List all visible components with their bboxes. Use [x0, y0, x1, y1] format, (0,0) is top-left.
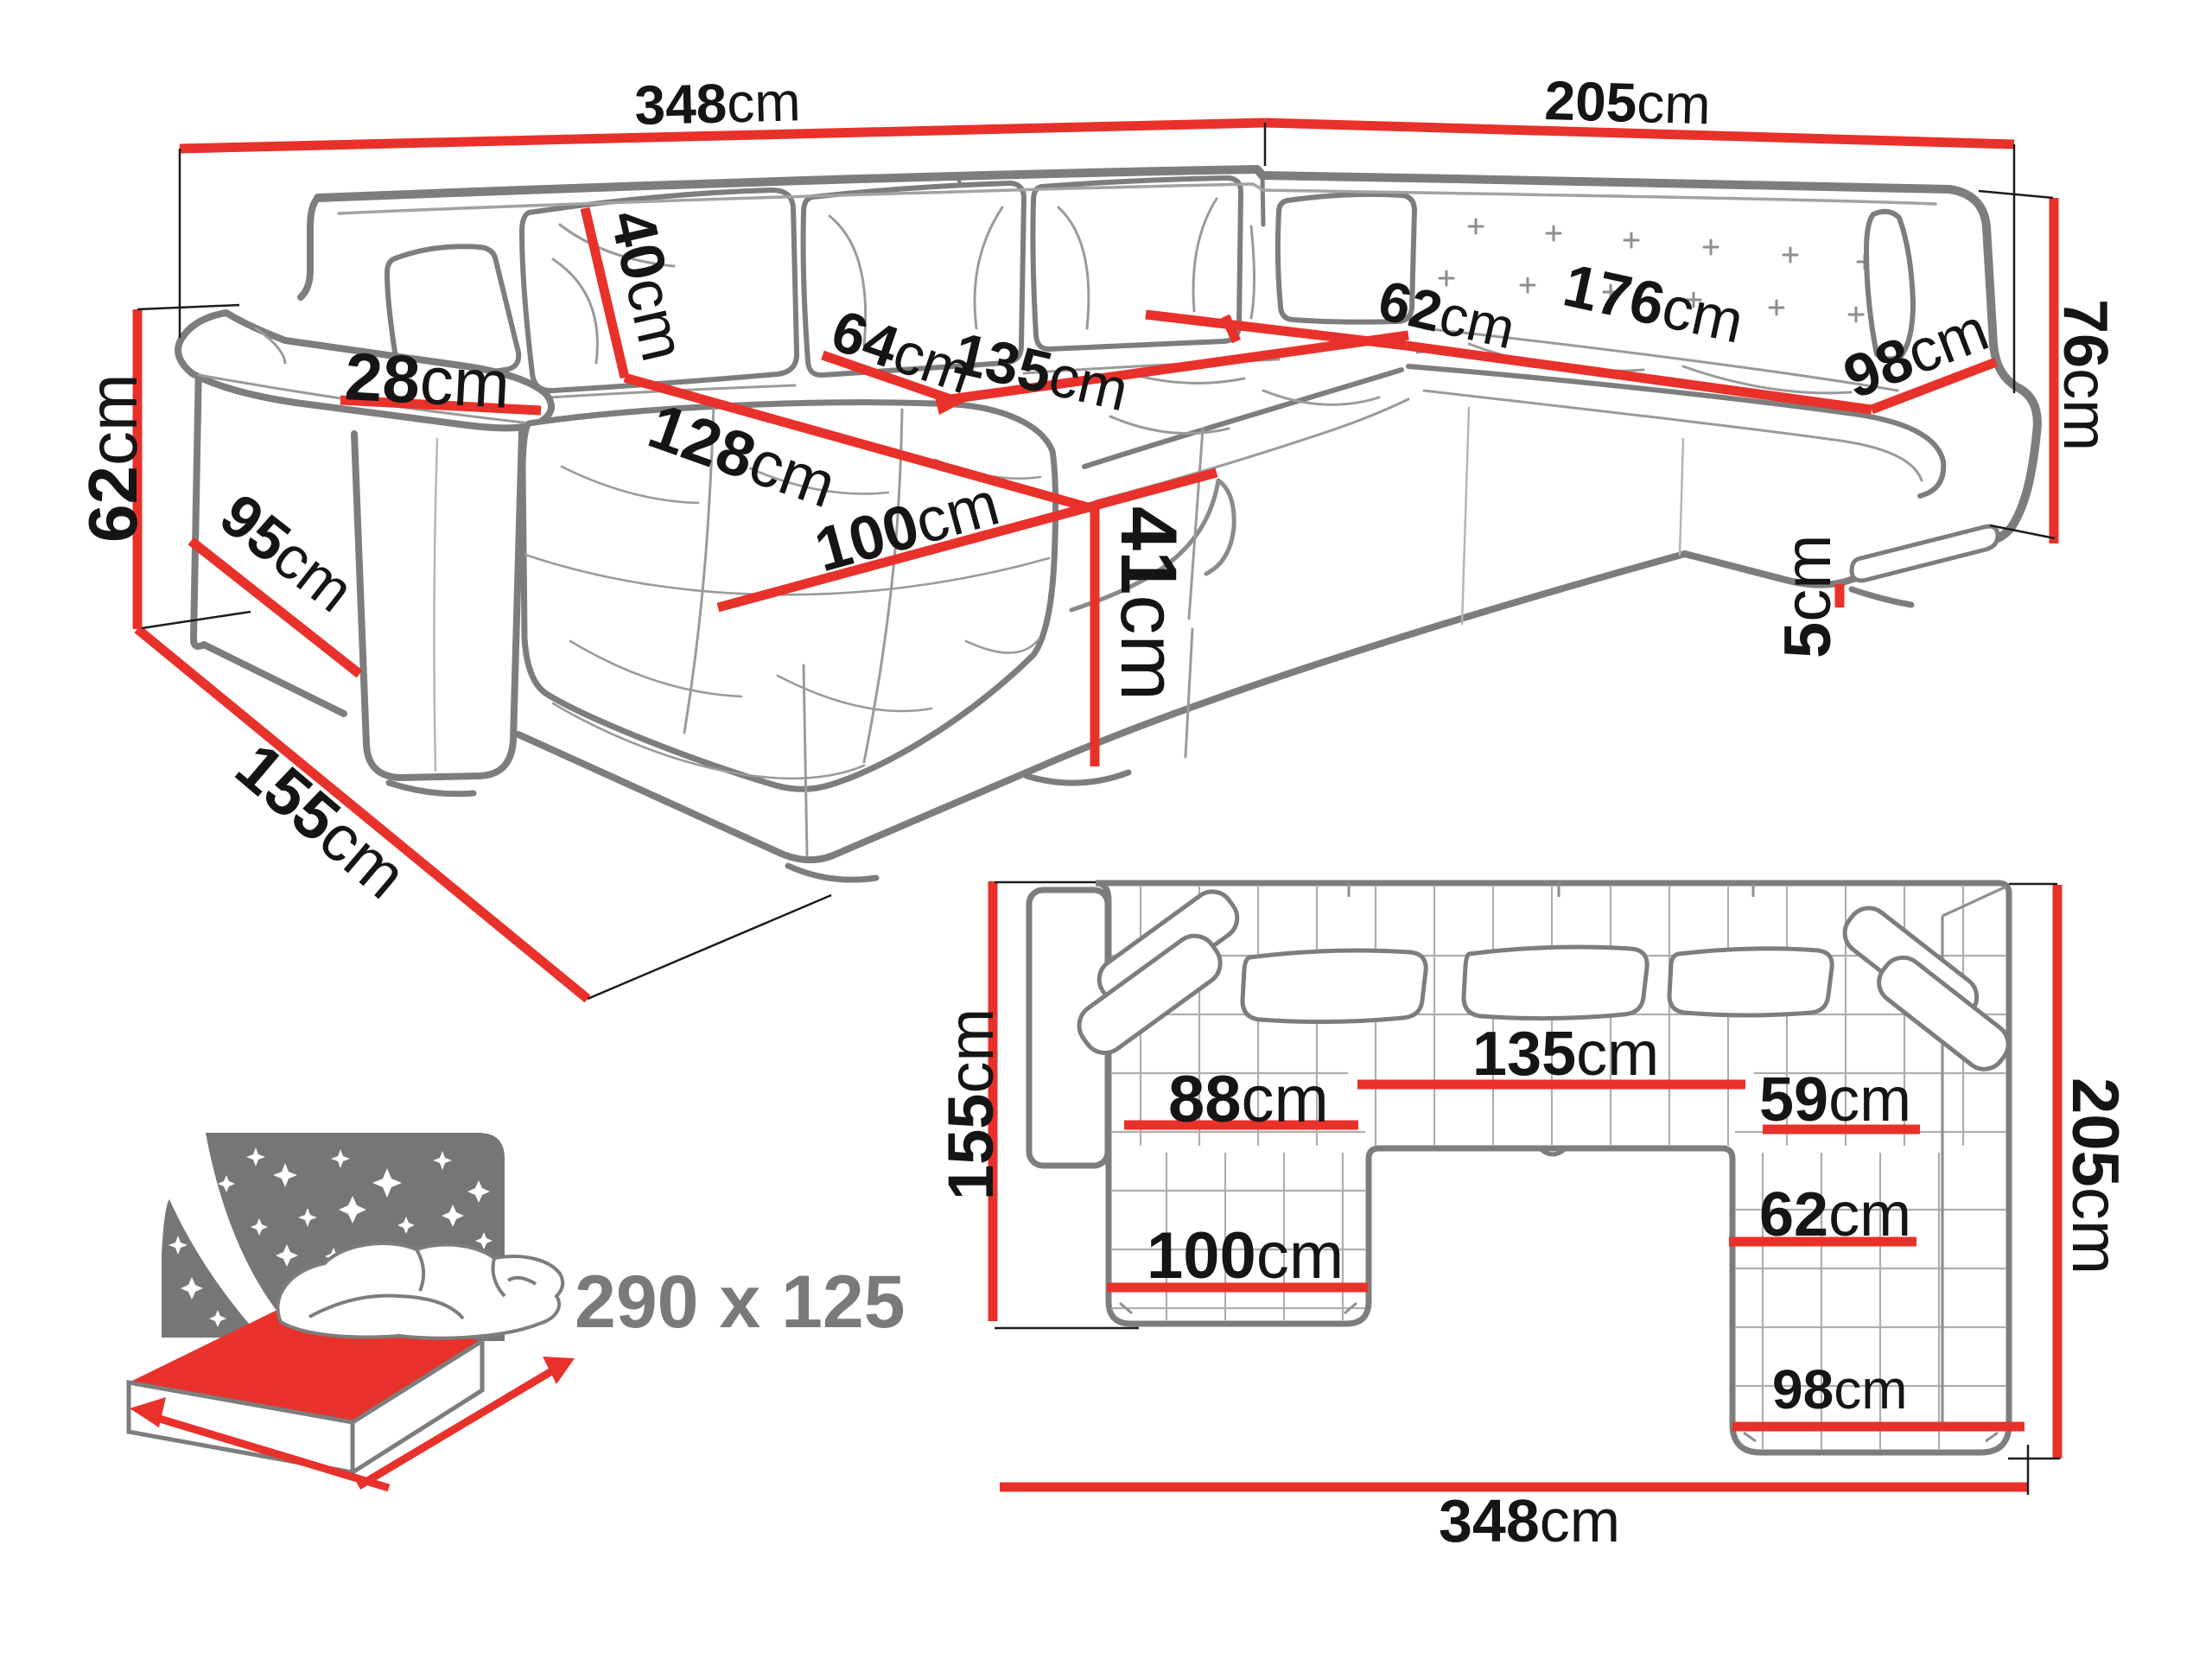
svg-text:5cm: 5cm: [1771, 534, 1845, 658]
svg-text:41cm: 41cm: [1104, 506, 1192, 701]
svg-text:348cm: 348cm: [634, 70, 802, 137]
svg-text:155cm: 155cm: [935, 1008, 1007, 1200]
svg-text:62cm: 62cm: [1759, 1180, 1911, 1249]
svg-text:290 x 125: 290 x 125: [575, 1261, 906, 1344]
svg-text:76cm: 76cm: [2050, 299, 2120, 451]
svg-text:205cm: 205cm: [2058, 1077, 2132, 1274]
svg-text:205cm: 205cm: [1544, 69, 1712, 136]
svg-text:62cm: 62cm: [74, 373, 151, 543]
svg-text:98cm: 98cm: [1772, 1358, 1908, 1421]
svg-text:28cm: 28cm: [343, 338, 512, 423]
svg-text:348cm: 348cm: [1439, 1487, 1620, 1554]
svg-text:88cm: 88cm: [1168, 1063, 1329, 1136]
svg-text:59cm: 59cm: [1759, 1065, 1911, 1135]
svg-text:135cm: 135cm: [1472, 1020, 1659, 1089]
svg-text:100cm: 100cm: [1147, 1219, 1344, 1293]
